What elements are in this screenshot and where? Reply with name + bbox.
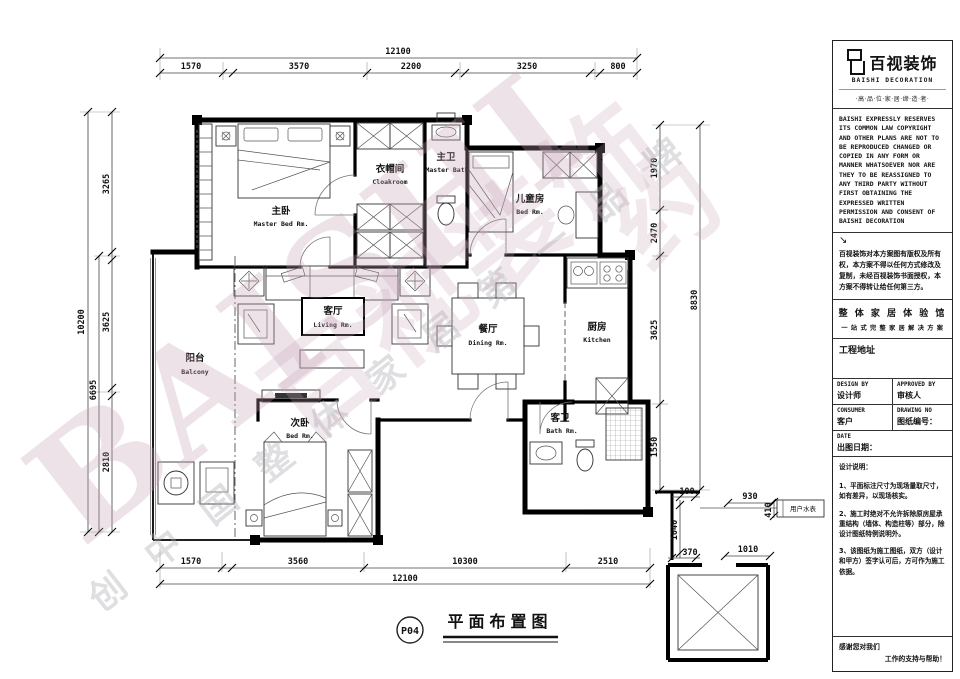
drawing-title: P04 平面布置图: [397, 612, 558, 643]
dim-detail-1040: 1040: [670, 520, 680, 540]
baishi-logo-icon: [847, 49, 865, 75]
dimensions-top: 12100 1570 3570 2200 3250 800: [156, 47, 641, 80]
dimensions-right: 1970 2470 3625 1550 8830: [650, 121, 710, 494]
room-label-cloak-cn: 衣帽间: [376, 163, 405, 175]
date-row: DATE 出图日期：: [833, 431, 952, 457]
dim-bottom-3: 10300: [452, 557, 478, 567]
copyright-english: BAISHI EXPRESSLY RESERVES ITS COMMON LAW…: [833, 109, 952, 233]
dim-top-3: 2200: [401, 62, 421, 72]
room-label-bed2-en: Bed Rm.: [286, 432, 313, 440]
room-label-gbath-cn: 客卫: [549, 412, 570, 424]
room-cloakroom: 衣帽间 Cloakroom: [357, 123, 423, 258]
dim-top-2: 3570: [289, 62, 309, 72]
dim-detail-370: 370: [682, 548, 697, 558]
room-living: 客厅 Living Rm.: [234, 266, 430, 402]
drawing-no-value: 图纸编号：: [897, 416, 948, 427]
consumer-cell: CONSUMER 客户: [833, 405, 892, 430]
room-label-child-cn: 儿童房: [515, 193, 545, 205]
note-3: 3、该图纸为施工图纸，双方（设计和甲方）签字认可后，方可作为施工依据。: [839, 546, 946, 577]
room-label-bed2-cn: 次卧: [290, 417, 310, 429]
dimensions-bottom: 1570 3560 10300 2510 12100: [156, 548, 654, 588]
design-by-cell: DESIGN BY 设计师: [833, 379, 892, 404]
windows: [151, 130, 641, 543]
note-1: 1、平面标注尺寸为现场量取尺寸，如有差异，以现场核实。: [839, 481, 946, 501]
consumer-drawingno-row: CONSUMER 客户 DRAWING NO 图纸编号：: [833, 405, 952, 431]
drawing-no-cell: DRAWING NO 图纸编号：: [892, 405, 952, 430]
dim-left-2: 3625: [102, 312, 112, 332]
room-label-gbath-en: Bath Rm.: [546, 427, 577, 435]
dim-right-2: 2470: [650, 223, 660, 243]
approver-value: 审核人: [897, 390, 948, 401]
dim-right-3: 3625: [650, 320, 660, 340]
customer-value: 客户: [837, 416, 888, 427]
brand-name-en: BAISHI DECORATION: [839, 77, 946, 84]
dim-left-total: 10200: [77, 309, 87, 335]
room-label-kitchen-en: Kitchen: [583, 336, 610, 344]
project-address: 工程地址: [833, 339, 952, 379]
elevator-shaft: 100 1040 370 1010 930 410 用户水表: [655, 487, 824, 660]
dimensions-left: 10200 6695 3265 3625 2810: [77, 108, 120, 536]
brand-tagline: ·高·品·位·家·居·缔·造·者·: [839, 89, 946, 103]
dim-detail-100: 100: [679, 487, 694, 497]
dim-detail-930: 930: [742, 492, 757, 502]
water-meter-label: 用户水表: [790, 504, 817, 513]
designer-approver-row: DESIGN BY 设计师 APPROVED BY 审核人: [833, 379, 952, 405]
dim-left-3: 2810: [102, 452, 112, 472]
dim-top-5: 800: [610, 62, 625, 72]
room-dining: 餐厅 Dining Rm.: [437, 283, 539, 389]
brand-slogan-section: 整 体 家 居 体 验 馆 一 站 式 完 整 家 居 解 决 方 案: [833, 300, 952, 339]
dim-top-1: 1570: [181, 62, 201, 72]
room-label-master-en: Master Bed Rm.: [254, 220, 309, 228]
room-kitchen: 厨房 Kitchen: [567, 258, 628, 414]
design-notes: 设计说明： 1、平面标注尺寸为现场量取尺寸，如有差异，以现场核实。 2、施工时绝…: [833, 457, 952, 637]
floor-plan-canvas: 12100 1570 3570 2200 3250 800 1570 3560 …: [0, 0, 960, 679]
copyright-chinese: 百视装饰对本方案图有版权及所有权，本方案不得以任何方式修改及复制，未经百视装饰书…: [833, 246, 952, 299]
copyright-chinese-section: ↘ 百视装饰对本方案图有版权及所有权，本方案不得以任何方式修改及复制，未经百视装…: [833, 233, 952, 300]
note-2: 2、施工时绝对不允许拆除原房屋承重结构（墙体、构造柱等）部分，除设计图纸特例说明…: [839, 509, 946, 540]
drawing-no-label: DRAWING NO: [897, 408, 948, 414]
room-master-bath: 主卫 Master Bath: [425, 113, 468, 225]
dim-right-total: 8830: [690, 290, 700, 310]
dim-bottom-1: 1570: [181, 557, 201, 567]
thanks-line2: 工作的支持与帮助！: [839, 653, 946, 663]
room-label-living-en: Living Rm.: [313, 321, 352, 329]
approved-by-cell: APPROVED BY 审核人: [892, 379, 952, 404]
room-label-master-cn: 主卧: [271, 205, 291, 217]
slogan-line2: 一 站 式 完 整 家 居 解 决 方 案: [837, 323, 948, 332]
room-label-kitchen-cn: 厨房: [587, 321, 606, 333]
dim-left-1: 3265: [102, 174, 112, 194]
dim-left-mid: 6695: [89, 380, 99, 400]
consumer-label: CONSUMER: [837, 408, 888, 414]
title-block: 百视装饰 BAISHI DECORATION ·高·品·位·家·居·缔·造·者·…: [832, 40, 953, 672]
dim-detail-1010: 1010: [738, 545, 758, 555]
dim-detail-410: 410: [764, 502, 774, 517]
slogan-line1: 整 体 家 居 体 验 馆: [837, 306, 948, 319]
brand-name-cn: 百视装饰: [869, 50, 937, 74]
room-bedroom2: 次卧 Bed Rm.: [246, 417, 372, 536]
notes-title: 设计说明：: [839, 462, 946, 472]
room-label-cloak-en: Cloakroom: [372, 178, 407, 186]
room-guest-bath: 客卫 Bath Rm.: [530, 408, 642, 471]
room-label-mbath-cn: 主卫: [436, 151, 456, 163]
thanks-note: 感谢您对我们 工作的支持与帮助！: [833, 637, 952, 671]
dim-top-total: 12100: [385, 47, 411, 57]
room-label-balcony-cn: 阳台: [185, 352, 205, 364]
room-balcony: 阳台 Balcony: [158, 352, 234, 504]
dim-right-1: 1970: [650, 158, 660, 178]
room-label-living-cn: 客厅: [322, 305, 343, 317]
drawing-sheet: 12100 1570 3570 2200 3250 800 1570 3560 …: [0, 0, 960, 679]
room-master-bedroom: 主卧 Master Bed Rm.: [199, 124, 350, 260]
design-by-label: DESIGN BY: [837, 382, 888, 388]
room-label-child-en: Bed Rm.: [516, 208, 543, 216]
dim-bottom-2: 3560: [288, 557, 308, 567]
room-label-mbath-en: Master Bath: [425, 166, 468, 174]
dim-top-4: 3250: [517, 62, 537, 72]
arrow-icon: ↘: [833, 233, 952, 246]
date-label: DATE: [837, 434, 948, 440]
room-label-balcony-en: Balcony: [181, 368, 208, 376]
date-value: 出图日期：: [837, 442, 948, 453]
room-label-dining-en: Dining Rm.: [468, 339, 507, 347]
sheet-number: P04: [401, 626, 419, 637]
dim-bottom-4: 2510: [598, 557, 618, 567]
dim-bottom-total: 12100: [392, 574, 418, 584]
room-label-dining-cn: 餐厅: [477, 323, 498, 335]
thanks-line1: 感谢您对我们: [839, 641, 946, 651]
title-block-logo: 百视装饰 BAISHI DECORATION ·高·品·位·家·居·缔·造·者·: [833, 41, 952, 109]
designer-value: 设计师: [837, 390, 888, 401]
approved-by-label: APPROVED BY: [897, 382, 948, 388]
room-children: 儿童房 Bed Rm.: [469, 152, 598, 238]
dim-right-4: 1550: [650, 437, 660, 457]
sheet-title: 平面布置图: [447, 612, 552, 631]
